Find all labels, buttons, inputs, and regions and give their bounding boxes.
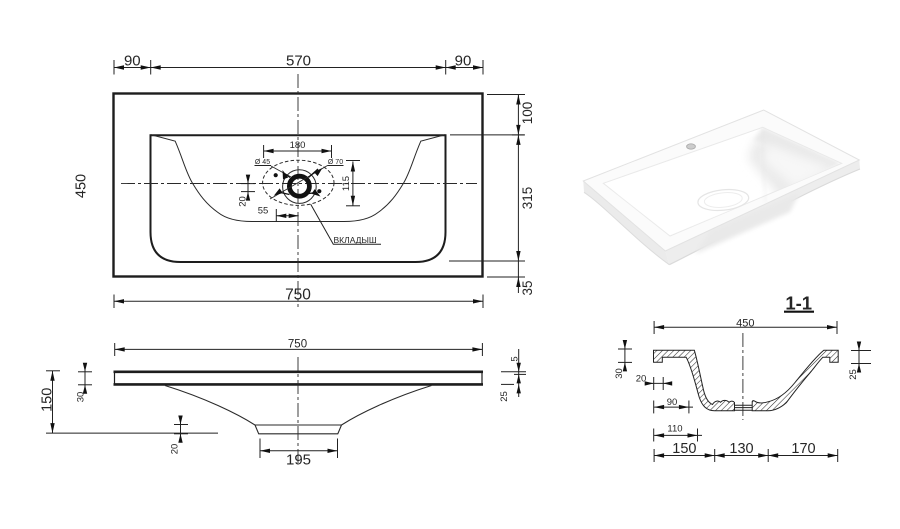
svg-text:130: 130 [729, 441, 753, 457]
svg-text:20: 20 [636, 374, 647, 385]
svg-text:150: 150 [672, 441, 696, 457]
svg-text:35: 35 [520, 280, 535, 295]
svg-text:20: 20 [238, 196, 249, 207]
svg-text:750: 750 [288, 339, 307, 351]
svg-text:55: 55 [258, 206, 269, 217]
svg-text:170: 170 [791, 441, 815, 457]
svg-text:ВКЛАДЫШ: ВКЛАДЫШ [334, 235, 377, 245]
svg-text:90: 90 [667, 397, 678, 408]
svg-text:100: 100 [520, 102, 535, 125]
svg-text:180: 180 [290, 140, 306, 151]
svg-text:30: 30 [76, 392, 87, 403]
svg-text:20: 20 [170, 444, 181, 455]
svg-text:90: 90 [124, 53, 141, 70]
svg-text:110: 110 [667, 424, 682, 435]
svg-text:195: 195 [286, 451, 311, 468]
svg-text:315: 315 [520, 187, 535, 210]
svg-text:25: 25 [848, 369, 859, 380]
svg-text:30: 30 [614, 368, 625, 379]
svg-text:450: 450 [74, 174, 90, 198]
svg-text:Ø 45: Ø 45 [255, 159, 270, 166]
svg-text:750: 750 [285, 287, 311, 304]
svg-text:115: 115 [341, 176, 352, 191]
svg-text:570: 570 [286, 53, 311, 70]
svg-text:150: 150 [40, 388, 56, 412]
svg-text:90: 90 [455, 53, 472, 70]
svg-text:5: 5 [510, 356, 521, 361]
svg-text:1-1: 1-1 [785, 292, 812, 313]
svg-text:Ø 70: Ø 70 [328, 159, 343, 166]
svg-text:25: 25 [499, 391, 510, 402]
svg-text:450: 450 [736, 317, 754, 329]
